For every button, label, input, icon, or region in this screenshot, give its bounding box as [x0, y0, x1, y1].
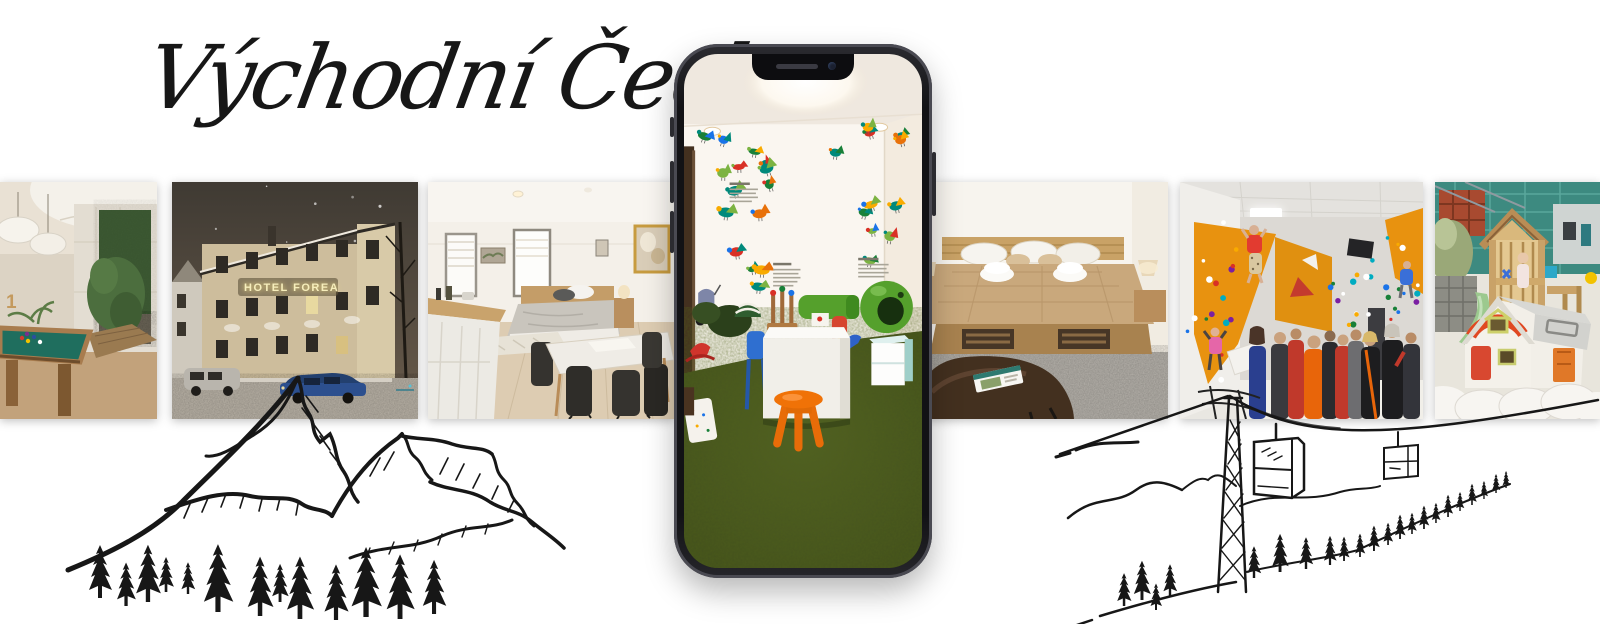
apartment-illustration: [428, 182, 674, 419]
playground-illustration: [1435, 182, 1600, 419]
photo-climbing-gym: [1180, 182, 1423, 419]
climbing-gym-illustration: [1180, 182, 1423, 419]
phone-volume-up-button: [670, 161, 674, 203]
toy-stand: [767, 286, 797, 331]
bed: [922, 237, 1154, 354]
phone-notch: [752, 54, 854, 80]
hotel-sign-text: HOTEL FOREA: [244, 282, 339, 294]
cable-car-sketch: [1040, 390, 1600, 624]
billiards-room-illustration: 1: [0, 182, 157, 419]
photo-billiards-room: 1: [0, 182, 157, 419]
orange-stool: [774, 390, 823, 447]
phone-mockup: [674, 44, 932, 578]
phone-volume-down-button: [670, 211, 674, 253]
pine-trees: [1117, 471, 1510, 610]
pine-trees: [89, 544, 446, 620]
phone-mute-switch: [670, 117, 674, 137]
wall-number: 1: [6, 292, 17, 313]
photo-playground: [1435, 182, 1600, 419]
photo-apartment-studio: [428, 182, 674, 419]
front-camera-icon: [828, 62, 836, 70]
hotel-night-illustration: HOTEL FOREA: [172, 182, 418, 419]
hero-banner: Východní Čechy 1: [0, 0, 1600, 624]
speaker-grille-icon: [776, 64, 818, 69]
playroom-photo: [684, 54, 922, 568]
toy-shelf: [869, 335, 913, 385]
bedroom-illustration: [922, 182, 1168, 419]
photo-hotel-night: HOTEL FOREA: [172, 182, 418, 419]
striped-pouf: [735, 304, 761, 317]
photo-hotel-bedroom: [922, 182, 1168, 419]
phone-power-button: [932, 152, 936, 216]
phone-screen: [684, 54, 922, 568]
play-tunnel: [860, 281, 913, 333]
